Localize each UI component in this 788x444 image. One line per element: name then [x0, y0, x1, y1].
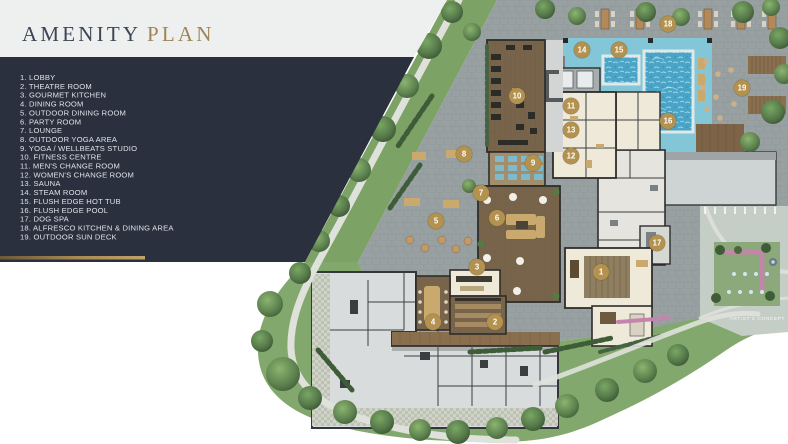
- plan-marker-7: 7: [473, 185, 490, 202]
- plan-marker-1: 1: [593, 264, 610, 281]
- amenity-site-plan: AMENITYPLAN 1. LOBBY 2. THEATRE ROOM 3. …: [0, 0, 788, 444]
- svg-text:2: 2: [493, 318, 498, 327]
- legend-item: 11. MEN'S CHANGE ROOM: [20, 162, 120, 171]
- hot-tub: [603, 56, 639, 84]
- svg-text:17: 17: [653, 239, 662, 248]
- legend-item: 8. OUTDOOR YOGA AREA: [20, 135, 118, 144]
- legend-item: 5. OUTDOOR DINING ROOM: [20, 108, 126, 117]
- legend-item: 13. SAUNA: [20, 179, 61, 188]
- legend-item: 19. OUTDOOR SUN DECK: [20, 232, 117, 241]
- artists-concept-caption: ARTIST'S CONCEPT: [730, 316, 785, 322]
- plan-marker-10: 10: [509, 88, 526, 105]
- plan-marker-13: 13: [563, 122, 580, 139]
- plan-marker-12: 12: [563, 148, 580, 165]
- svg-text:19: 19: [738, 84, 747, 93]
- svg-text:8: 8: [462, 150, 467, 159]
- svg-text:7: 7: [479, 189, 483, 198]
- plan-marker-4: 4: [425, 314, 442, 331]
- svg-text:5: 5: [434, 217, 439, 226]
- amenity-plan-page: AMENITYPLAN 1. LOBBY 2. THEATRE ROOM 3. …: [0, 0, 788, 444]
- plan-marker-16: 16: [660, 113, 677, 130]
- plan-marker-8: 8: [456, 146, 473, 163]
- svg-text:11: 11: [567, 102, 576, 111]
- legend-item: 18. ALFRESCO KITCHEN & DINING AREA: [20, 224, 174, 233]
- svg-text:3: 3: [475, 263, 480, 272]
- svg-text:14: 14: [578, 46, 587, 55]
- legend-item: 16. FLUSH EDGE POOL: [20, 206, 108, 215]
- plan-marker-18: 18: [660, 16, 677, 33]
- plan-marker-14: 14: [574, 42, 591, 59]
- legend-item: 6. PARTY ROOM: [20, 117, 81, 126]
- legend-item: 7. LOUNGE: [20, 126, 62, 135]
- legend-item: 3. GOURMET KITCHEN: [20, 91, 106, 100]
- legend-item: 12. WOMEN'S CHANGE ROOM: [20, 170, 134, 179]
- legend-item: 4. DINING ROOM: [20, 100, 84, 109]
- plan-marker-5: 5: [428, 213, 445, 230]
- legend-item: 1. LOBBY: [20, 73, 55, 82]
- svg-text:1: 1: [599, 268, 604, 277]
- parkade-roof: [648, 152, 776, 205]
- svg-text:9: 9: [531, 159, 536, 168]
- svg-text:15: 15: [615, 46, 624, 55]
- svg-text:16: 16: [664, 117, 673, 126]
- plan-marker-11: 11: [563, 98, 580, 115]
- plan-marker-9: 9: [525, 155, 542, 172]
- legend-item: 2. THEATRE ROOM: [20, 82, 92, 91]
- legend-item: 9. YOGA / WELLBEATS STUDIO: [20, 144, 137, 153]
- svg-text:10: 10: [513, 92, 522, 101]
- plan-marker-3: 3: [469, 259, 486, 276]
- svg-text:4: 4: [431, 318, 436, 327]
- svg-text:12: 12: [567, 152, 576, 161]
- svg-text:13: 13: [567, 126, 576, 135]
- svg-text:6: 6: [495, 214, 500, 223]
- legend-item: 14. STEAM ROOM: [20, 188, 87, 197]
- plan-marker-15: 15: [611, 42, 628, 59]
- plan-marker-2: 2: [487, 314, 504, 331]
- legend-item: 10. FITNESS CENTRE: [20, 153, 102, 162]
- page-title: AMENITYPLAN: [22, 22, 215, 46]
- plan-marker-19: 19: [734, 80, 751, 97]
- plan-marker-6: 6: [489, 210, 506, 227]
- legend-item: 17. DOG SPA: [20, 215, 70, 224]
- garden-plaza: [711, 242, 780, 306]
- svg-text:18: 18: [664, 20, 673, 29]
- legend-item: 15. FLUSH EDGE HOT TUB: [20, 197, 121, 206]
- gold-accent-bar: [0, 256, 145, 260]
- plan-marker-17: 17: [649, 235, 666, 252]
